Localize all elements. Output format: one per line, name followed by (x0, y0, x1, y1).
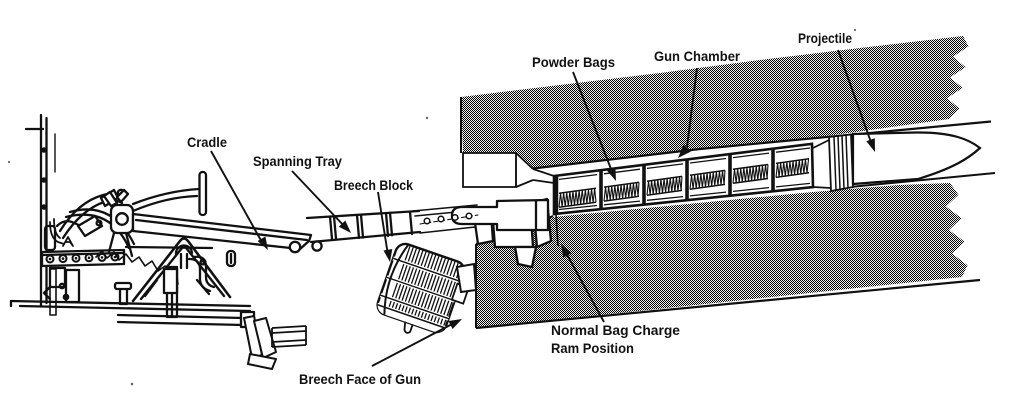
svg-text:Cradle: Cradle (187, 134, 227, 150)
svg-text:Breech Block: Breech Block (334, 177, 413, 193)
svg-text:Spanning Tray: Spanning Tray (253, 153, 342, 169)
svg-text:Breech Face of Gun: Breech Face of Gun (299, 371, 421, 387)
svg-text:Gun Chamber: Gun Chamber (654, 48, 741, 64)
svg-text:Powder Bags: Powder Bags (532, 54, 615, 70)
svg-text:Normal Bag Charge: Normal Bag Charge (551, 322, 680, 338)
svg-text:Projectile: Projectile (798, 30, 852, 46)
svg-text:Ram Position: Ram Position (551, 340, 634, 356)
